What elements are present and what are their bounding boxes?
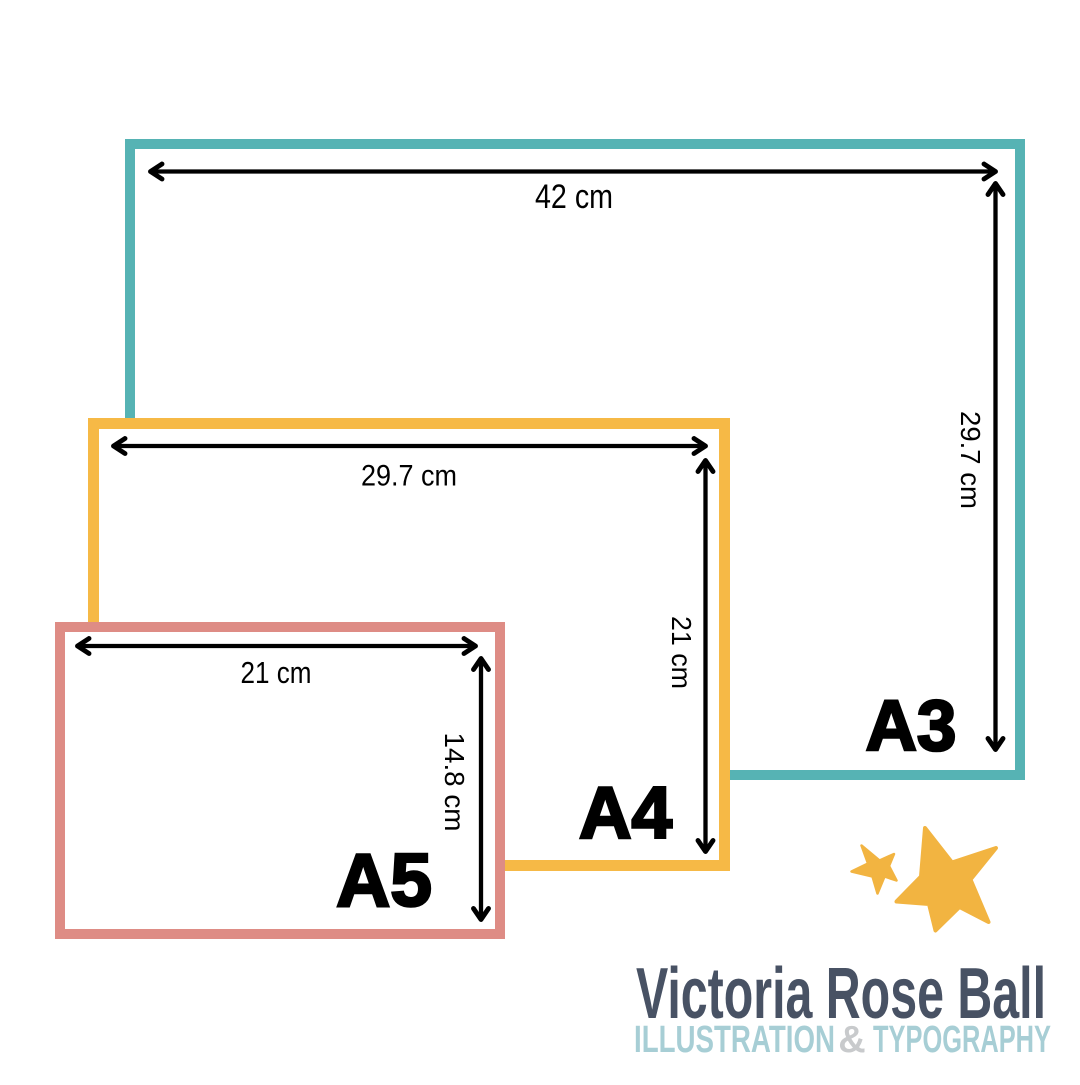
svg-text:29.7 cm: 29.7 cm: [955, 411, 986, 509]
svg-text:A4: A4: [579, 773, 673, 854]
svg-text:21 cm: 21 cm: [666, 616, 697, 689]
svg-text:42 cm: 42 cm: [535, 178, 613, 216]
svg-text:ILLUSTRATION: ILLUSTRATION: [634, 1019, 835, 1061]
svg-text:A5: A5: [336, 838, 432, 922]
svg-text:29.7 cm: 29.7 cm: [361, 460, 457, 493]
svg-text:&: &: [838, 1019, 865, 1061]
svg-text:TYPOGRAPHY: TYPOGRAPHY: [873, 1019, 1051, 1061]
svg-text:21 cm: 21 cm: [241, 655, 312, 690]
svg-text:14.8 cm: 14.8 cm: [439, 733, 470, 832]
svg-text:A3: A3: [866, 687, 957, 766]
